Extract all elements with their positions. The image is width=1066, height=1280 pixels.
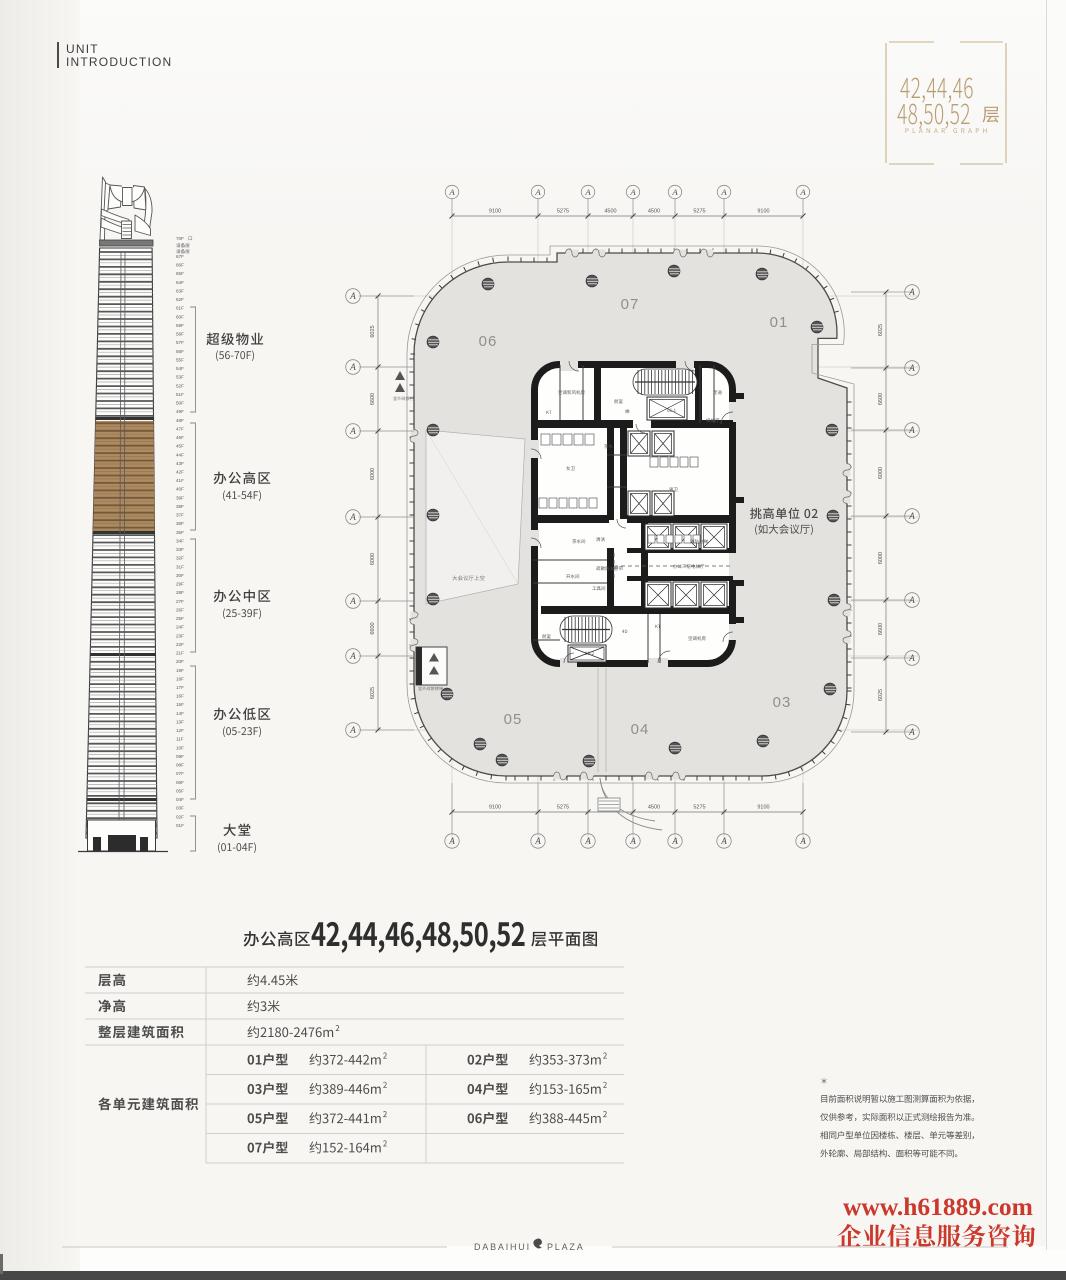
svg-text:54F: 54F [176, 366, 184, 371]
svg-text:35F: 35F [176, 530, 184, 535]
svg-text:14F: 14F [176, 711, 184, 716]
svg-text:01: 01 [770, 314, 789, 331]
svg-text:24F: 24F [176, 625, 184, 630]
svg-text:A: A [448, 836, 455, 846]
svg-text:9100: 9100 [489, 209, 501, 215]
svg-text:16F: 16F [176, 694, 184, 699]
svg-text:65F: 65F [176, 271, 184, 276]
svg-text:27F: 27F [176, 599, 184, 604]
svg-text:63F: 63F [176, 289, 184, 294]
svg-text:50F: 50F [176, 401, 184, 406]
svg-text:5275: 5275 [693, 209, 705, 215]
svg-text:11F: 11F [176, 737, 184, 742]
svg-text:A: A [671, 836, 678, 846]
svg-text:A: A [799, 187, 806, 197]
svg-text:33F: 33F [176, 547, 184, 552]
svg-text:09F: 09F [176, 754, 184, 759]
svg-text:06: 06 [479, 333, 498, 350]
svg-text:03F: 03F [176, 806, 184, 811]
svg-text:A: A [349, 427, 356, 437]
svg-text:56F: 56F [176, 349, 184, 354]
svg-text:70F: 70F [176, 236, 184, 241]
svg-text:08F: 08F [176, 763, 184, 768]
svg-text:5275: 5275 [693, 805, 705, 811]
svg-text:04F: 04F [176, 797, 184, 802]
svg-text:DABAIHUI: DABAIHUI [474, 1242, 531, 1252]
svg-text:67F: 67F [176, 254, 184, 259]
svg-text:01F: 01F [176, 823, 184, 828]
svg-text:A: A [584, 187, 591, 197]
svg-text:21F: 21F [176, 651, 184, 656]
svg-text:6025: 6025 [370, 687, 376, 699]
svg-text:32F: 32F [176, 556, 184, 561]
svg-text:39F: 39F [176, 495, 184, 500]
svg-text:A: A [349, 652, 356, 662]
svg-text:05: 05 [504, 711, 523, 728]
svg-text:INTRODUCTION: INTRODUCTION [66, 55, 172, 69]
svg-text:6600: 6600 [370, 393, 376, 405]
svg-text:28F: 28F [176, 590, 184, 595]
svg-text:43F: 43F [176, 461, 184, 466]
svg-text:44F: 44F [176, 452, 184, 457]
svg-text:A: A [629, 836, 636, 846]
svg-text:07F: 07F [176, 771, 184, 776]
svg-text:A: A [349, 726, 356, 736]
svg-text:6000: 6000 [878, 552, 884, 564]
svg-text:52F: 52F [176, 383, 184, 388]
svg-text:6025: 6025 [878, 324, 884, 336]
svg-text:18F: 18F [176, 676, 184, 681]
svg-text:A: A [908, 426, 915, 436]
svg-text:UNIT: UNIT [66, 42, 99, 56]
svg-text:A: A [799, 836, 806, 846]
svg-text:PLAZA: PLAZA [547, 1242, 585, 1252]
svg-text:6025: 6025 [370, 325, 376, 337]
svg-text:03: 03 [773, 694, 792, 711]
svg-text:53F: 53F [176, 375, 184, 380]
svg-text:6600: 6600 [878, 623, 884, 635]
svg-text:57F: 57F [176, 340, 184, 345]
svg-text:9100: 9100 [757, 805, 769, 811]
svg-text:06F: 06F [176, 780, 184, 785]
svg-text:A: A [908, 512, 915, 522]
svg-text:5275: 5275 [557, 805, 569, 811]
svg-text:25F: 25F [176, 616, 184, 621]
svg-text:47F: 47F [176, 426, 184, 431]
svg-text:6600: 6600 [370, 622, 376, 634]
svg-text:66F: 66F [176, 263, 184, 268]
svg-text:26F: 26F [176, 607, 184, 612]
svg-text:A: A [448, 187, 455, 197]
svg-text:www.h61889.com: www.h61889.com [843, 1192, 1033, 1221]
svg-text:58F: 58F [176, 332, 184, 337]
svg-text:34F: 34F [176, 539, 184, 544]
svg-text:A: A [584, 836, 591, 846]
svg-text:17F: 17F [176, 685, 184, 690]
svg-text:38F: 38F [176, 504, 184, 509]
svg-text:61F: 61F [176, 306, 184, 311]
svg-text:62F: 62F [176, 297, 184, 302]
svg-text:9100: 9100 [489, 805, 501, 811]
svg-text:60F: 60F [176, 314, 184, 319]
svg-text:A: A [908, 364, 915, 374]
svg-text:15F: 15F [176, 702, 184, 707]
svg-text:31F: 31F [176, 564, 184, 569]
svg-text:A: A [671, 187, 678, 197]
svg-text:4500: 4500 [604, 209, 616, 215]
svg-text:12F: 12F [176, 728, 184, 733]
svg-text:30F: 30F [176, 573, 184, 578]
svg-text:6000: 6000 [878, 467, 884, 479]
svg-text:55F: 55F [176, 357, 184, 362]
svg-text:48F: 48F [176, 418, 184, 423]
svg-text:36F: 36F [176, 521, 184, 526]
svg-text:A: A [720, 836, 727, 846]
svg-text:A: A [534, 836, 541, 846]
svg-text:A: A [534, 187, 541, 197]
svg-text:29F: 29F [176, 582, 184, 587]
svg-text:4500: 4500 [648, 805, 660, 811]
svg-text:37F: 37F [176, 513, 184, 518]
svg-text:49F: 49F [176, 409, 184, 414]
svg-text:23F: 23F [176, 633, 184, 638]
svg-text:22F: 22F [176, 642, 184, 647]
svg-text:45F: 45F [176, 444, 184, 449]
svg-text:13F: 13F [176, 720, 184, 725]
svg-text:51F: 51F [176, 392, 184, 397]
svg-text:A: A [908, 288, 915, 298]
svg-text:A: A [720, 187, 727, 197]
svg-text:A: A [908, 596, 915, 606]
svg-text:07: 07 [621, 296, 640, 313]
svg-text:9100: 9100 [757, 209, 769, 215]
svg-text:42F: 42F [176, 470, 184, 475]
svg-text:46F: 46F [176, 435, 184, 440]
svg-text:A: A [349, 513, 356, 523]
svg-text:02F: 02F [176, 814, 184, 819]
svg-text:5275: 5275 [557, 209, 569, 215]
svg-text:6025: 6025 [878, 689, 884, 701]
svg-text:59F: 59F [176, 323, 184, 328]
svg-text:4500: 4500 [648, 209, 660, 215]
svg-text:19F: 19F [176, 668, 184, 673]
svg-text:05F: 05F [176, 788, 184, 793]
svg-text:A: A [629, 187, 636, 197]
svg-text:6600: 6600 [878, 393, 884, 405]
svg-text:6000: 6000 [370, 468, 376, 480]
svg-text:A: A [908, 728, 915, 738]
svg-text:A: A [349, 597, 356, 607]
svg-text:A: A [349, 292, 356, 302]
svg-text:A: A [349, 363, 356, 373]
svg-text:04: 04 [631, 721, 650, 738]
svg-text:20F: 20F [176, 659, 184, 664]
svg-text:A: A [908, 654, 915, 664]
svg-text:40F: 40F [176, 487, 184, 492]
svg-text:6000: 6000 [370, 553, 376, 565]
svg-text:10F: 10F [176, 745, 184, 750]
svg-text:64F: 64F [176, 280, 184, 285]
svg-text:41F: 41F [176, 478, 184, 483]
